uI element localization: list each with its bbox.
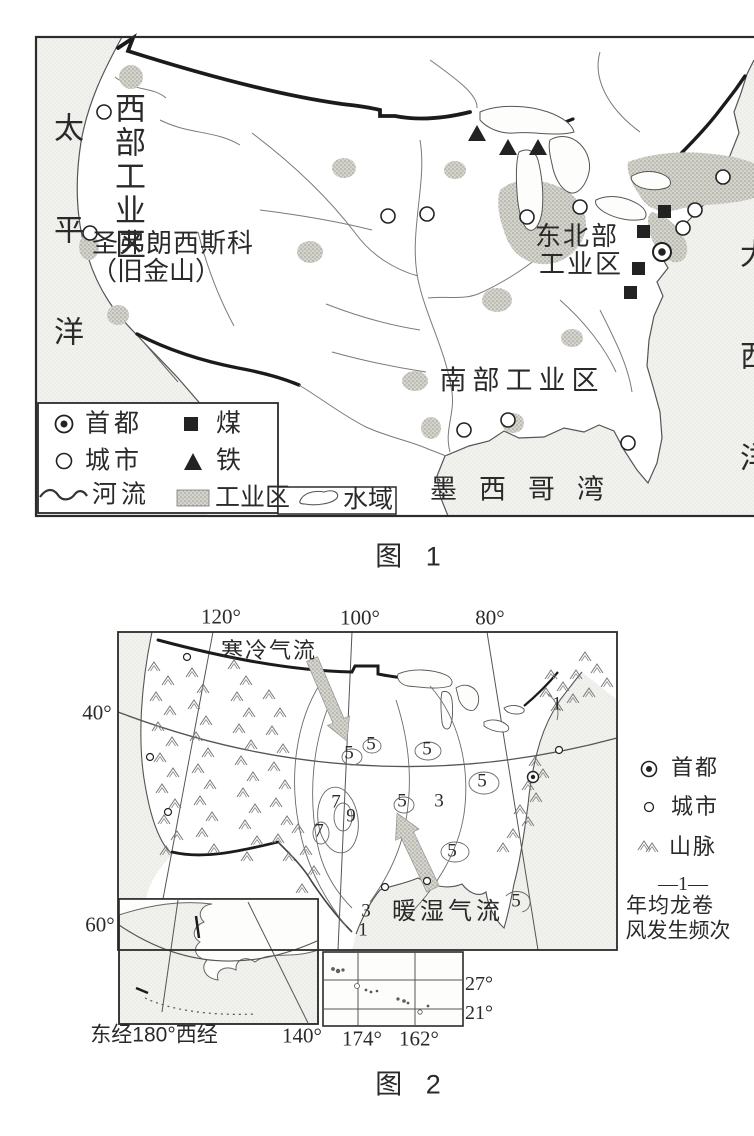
pacific-ocean-label: 太平洋 <box>50 112 80 418</box>
map2-legend-capital-label: 首都 <box>671 757 719 779</box>
map2-legend <box>638 762 658 853</box>
map2-legend-city-label: 城市 <box>671 796 719 818</box>
contour-label: 3 <box>434 792 444 811</box>
south-zone-label: 南部工业区 <box>440 368 605 395</box>
map2-legend-frequency-label-line1: 年均龙卷 <box>626 896 714 917</box>
hawaii-inset <box>323 952 463 1026</box>
contour-label: 5 <box>366 735 376 754</box>
contour-label: 7 <box>331 793 341 812</box>
lon-174-label: 174° <box>342 1029 382 1050</box>
warm-current-label: 暖湿气流 <box>392 900 504 924</box>
contour-label: 9 <box>346 807 356 826</box>
contour-label: 5 <box>477 772 487 791</box>
northeast-zone-label-line2: 工业区 <box>539 251 623 277</box>
alaska-lon-label: 东经180°西经 <box>90 1025 217 1046</box>
lon-162-label: 162° <box>399 1029 439 1050</box>
contour-label: 7 <box>314 822 324 841</box>
legend-water-label: 水域 <box>343 488 393 513</box>
legend-industrial-icon <box>177 490 209 506</box>
lon-120-label: 120° <box>201 607 241 628</box>
legend-coal-label: 煤 <box>216 412 241 437</box>
lon-140-label: 140° <box>282 1026 322 1047</box>
contour-label: 5 <box>397 792 407 811</box>
map2-legend-frequency-label-line2: 风发生频次 <box>626 921 731 942</box>
lon-100-label: 100° <box>340 608 380 629</box>
contour-label: 1 <box>552 695 562 714</box>
legend-iron-label: 铁 <box>216 449 241 474</box>
legend-city-label: 城市 <box>85 449 143 474</box>
lat-40-label: 40° <box>82 703 111 724</box>
lon-80-label: 80° <box>475 608 504 629</box>
lat-60-label: 60° <box>85 915 114 936</box>
map2-legend-city-icon <box>645 803 654 812</box>
cold-current-label: 寒冷气流 <box>221 640 317 662</box>
capital-marker <box>653 243 671 261</box>
legend-city-icon <box>57 454 72 469</box>
contour-label: 1 <box>358 921 368 940</box>
contour-label: 5 <box>422 740 432 759</box>
contour-label: 5 <box>511 892 521 911</box>
contour-label: 3 <box>361 902 371 921</box>
scanned-textbook-page: { "colors": { "ink": "#2a2a2a", "coast_l… <box>0 0 754 1136</box>
legend-coal-icon <box>184 417 198 431</box>
san-francisco-label-line2: （旧金山） <box>91 258 221 284</box>
legend-capital-label: 首都 <box>85 412 143 437</box>
alaska-inset <box>119 899 318 1024</box>
map2-legend-frequency-symbol: —1— <box>658 874 708 894</box>
lat-27-label: 27° <box>465 974 493 994</box>
legend-river-label: 河流 <box>92 483 150 508</box>
san-francisco-label-line1: 圣弗朗西斯科 <box>92 230 254 256</box>
northeast-zone-label-line1: 东北部 <box>535 223 619 249</box>
atlantic-ocean-label: 大西洋 <box>736 238 754 544</box>
gulf-of-mexico-label: 墨西哥湾 <box>430 477 626 504</box>
map2-capital-marker <box>528 772 539 783</box>
legend-industrial-label: 工业区 <box>215 486 290 511</box>
map1-caption: 图 1 <box>375 544 449 571</box>
map2-legend-mountains-label: 山脉 <box>669 836 717 858</box>
map2 <box>118 632 658 1026</box>
contour-label: 5 <box>447 842 457 861</box>
contour-label: 5 <box>344 744 354 763</box>
lat-21-label: 21° <box>465 1003 493 1023</box>
map2-caption: 图 2 <box>375 1072 449 1099</box>
